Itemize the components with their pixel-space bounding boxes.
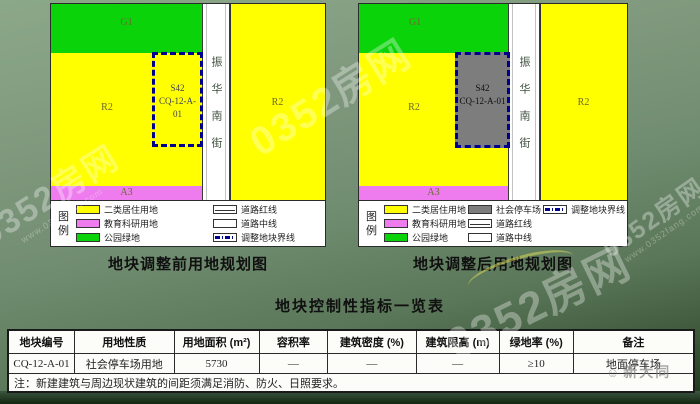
legend-label-residential: 二类居住用地 <box>104 203 158 216</box>
table-note: 注：新建建筑与周边现状建筑的间距须满足消防、防火、日照要求。 <box>8 374 694 393</box>
label-park: G1 <box>359 17 471 28</box>
zone-park-g1 <box>51 4 202 53</box>
legend-label-boundary: 调整地块界线 <box>571 203 625 216</box>
cell-plot-id: CQ-12-A-01 <box>8 354 75 374</box>
park-swatch <box>76 233 100 242</box>
legend-label-education: 教育科研用地 <box>104 217 158 230</box>
parking-swatch <box>468 205 492 214</box>
label-residential-left: R2 <box>359 102 469 113</box>
table-title: 地块控制性指标一览表 <box>150 295 570 316</box>
header-green-ratio: 绿地率 (%) <box>499 330 573 354</box>
education-swatch <box>76 219 100 228</box>
control-indicators-table: 地块编号 用地性质 用地面积 (m²) 容积率 建筑密度 (%) 建筑限高 (m… <box>7 329 695 393</box>
header-remarks: 备注 <box>573 330 694 354</box>
adjusted-plot-boundary: S42 CQ-12-A-01 <box>152 52 203 147</box>
cell-remarks: 地面停车场 <box>573 354 694 374</box>
legend-label-education: 教育科研用地 <box>412 217 466 230</box>
road-red-line-swatch <box>468 219 492 228</box>
legend-before: 图例 二类居住用地 教育科研用地 公园绿地 道路红线 道路中线 调整地块界线 <box>51 200 325 246</box>
header-height-limit: 建筑限高 (m) <box>416 330 499 354</box>
street-name: 振华南街 <box>208 56 224 164</box>
header-plot-id: 地块编号 <box>8 330 75 354</box>
cell-green-ratio: ≥10 <box>499 354 573 374</box>
road-red-line <box>206 4 207 200</box>
street-name: 振华南街 <box>516 56 532 164</box>
legend-after: 图例 二类居住用地 教育科研用地 公园绿地 社会停车场 道路红线 道路中线 调整… <box>359 200 627 246</box>
map-before-panel: G1 R2 A3 R2 振华南街 S42 CQ-12-A-01 图例 二类居住用… <box>50 3 326 247</box>
table-note-row: 注：新建建筑与周边现状建筑的间距须满足消防、防火、日照要求。 <box>8 374 694 393</box>
header-land-use: 用地性质 <box>75 330 174 354</box>
label-residential-left: R2 <box>51 102 163 113</box>
legend-label-residential: 二类居住用地 <box>412 203 466 216</box>
road-red-line <box>512 4 513 200</box>
legend-label-road-center: 道路中线 <box>241 217 277 230</box>
map-after-panel: G1 R2 A3 R2 振华南街 S42 CQ-12-A-01 图例 二类居住用… <box>358 3 628 247</box>
cell-land-use: 社会停车场用地 <box>75 354 174 374</box>
plot-type-label: S42 <box>155 82 200 95</box>
road-center-line-swatch <box>213 219 237 228</box>
park-swatch <box>384 233 408 242</box>
label-residential-right: R2 <box>230 97 325 108</box>
cell-far: — <box>259 354 328 374</box>
legend-label-park: 公园绿地 <box>412 231 448 244</box>
legend-title: 图例 <box>57 210 70 238</box>
legend-label-road-center: 道路中线 <box>496 231 532 244</box>
label-education: A3 <box>359 187 508 198</box>
legend-label-road-red: 道路红线 <box>496 217 532 230</box>
legend-label-park: 公园绿地 <box>104 231 140 244</box>
cell-building-density: — <box>328 354 416 374</box>
legend-label-road-red: 道路红线 <box>241 203 277 216</box>
adjusted-plot-parking: S42 CQ-12-A-01 <box>455 52 510 148</box>
cell-land-area: 5730 <box>174 354 259 374</box>
legend-label-parking: 社会停车场 <box>496 203 541 216</box>
planning-figure: G1 R2 A3 R2 振华南街 S42 CQ-12-A-01 图例 二类居住用… <box>0 0 700 404</box>
label-park: G1 <box>51 17 202 28</box>
zone-park-g1 <box>359 4 508 53</box>
label-education: A3 <box>51 187 202 198</box>
label-residential-right: R2 <box>540 97 627 108</box>
road-red-line-swatch <box>213 205 237 214</box>
header-land-area: 用地面积 (m²) <box>174 330 259 354</box>
plot-code-label: CQ-12-A-01 <box>458 95 507 108</box>
header-far: 容积率 <box>259 330 328 354</box>
boundary-swatch <box>213 233 237 242</box>
residential-swatch <box>76 205 100 214</box>
cell-height-limit: — <box>416 354 499 374</box>
street-zhenhua-south: 振华南街 <box>508 4 540 200</box>
legend-label-boundary: 调整地块界线 <box>241 231 295 244</box>
map-after: G1 R2 A3 R2 振华南街 S42 CQ-12-A-01 <box>359 4 627 200</box>
street-zhenhua-south: 振华南街 <box>202 4 230 200</box>
road-red-line <box>225 4 226 200</box>
caption-after: 地块调整后用地规划图 <box>358 253 628 274</box>
residential-swatch <box>384 205 408 214</box>
education-swatch <box>384 219 408 228</box>
plot-type-label: S42 <box>458 82 507 95</box>
boundary-swatch <box>543 205 567 214</box>
legend-title: 图例 <box>365 210 378 238</box>
plot-code-label: CQ-12-A-01 <box>155 95 200 121</box>
table-header-row: 地块编号 用地性质 用地面积 (m²) 容积率 建筑密度 (%) 建筑限高 (m… <box>8 330 694 354</box>
road-center-line-swatch <box>468 233 492 242</box>
map-before: G1 R2 A3 R2 振华南街 S42 CQ-12-A-01 <box>51 4 325 200</box>
header-building-density: 建筑密度 (%) <box>328 330 416 354</box>
road-red-line <box>535 4 536 200</box>
table-data-row: CQ-12-A-01 社会停车场用地 5730 — — — ≥10 地面停车场 <box>8 354 694 374</box>
caption-before: 地块调整前用地规划图 <box>50 253 326 274</box>
